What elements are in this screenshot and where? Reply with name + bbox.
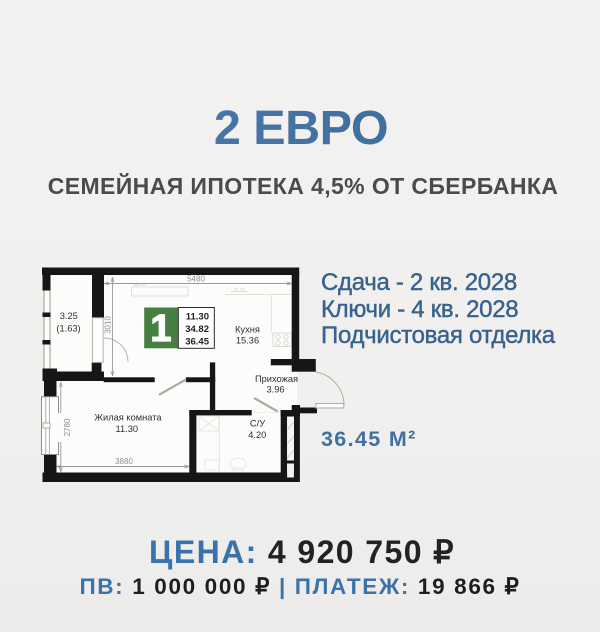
svg-text:11.30: 11.30	[186, 312, 209, 323]
svg-text:Жилая комната: Жилая комната	[94, 413, 162, 423]
svg-text:3.96: 3.96	[266, 384, 284, 394]
svg-text:34.82: 34.82	[185, 324, 209, 335]
svg-text:1: 1	[150, 308, 171, 350]
svg-text:4.20: 4.20	[248, 430, 266, 440]
svg-text:36.45: 36.45	[185, 337, 209, 348]
svg-text:Кухня: Кухня	[235, 325, 260, 335]
svg-text:15.36: 15.36	[236, 335, 259, 345]
svg-text:11.30: 11.30	[116, 424, 139, 434]
svg-text:5480: 5480	[187, 275, 205, 284]
svg-text:3880: 3880	[115, 457, 133, 466]
svg-text:3010: 3010	[104, 316, 113, 334]
svg-text:3.25: 3.25	[60, 311, 78, 321]
svg-text:С/У: С/У	[250, 418, 265, 428]
svg-text:2780: 2780	[63, 418, 72, 436]
svg-text:Прихожая: Прихожая	[255, 374, 298, 384]
svg-text:(1.63): (1.63)	[56, 324, 80, 334]
